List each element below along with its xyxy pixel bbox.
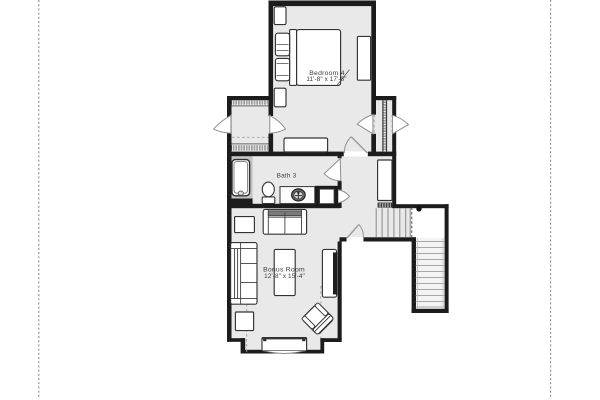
svg-text:12'-8" x 15'-4": 12'-8" x 15'-4" <box>264 273 305 280</box>
svg-text:Bath 3: Bath 3 <box>277 173 297 180</box>
svg-text:11'-8" x 17'-8": 11'-8" x 17'-8" <box>306 76 346 83</box>
